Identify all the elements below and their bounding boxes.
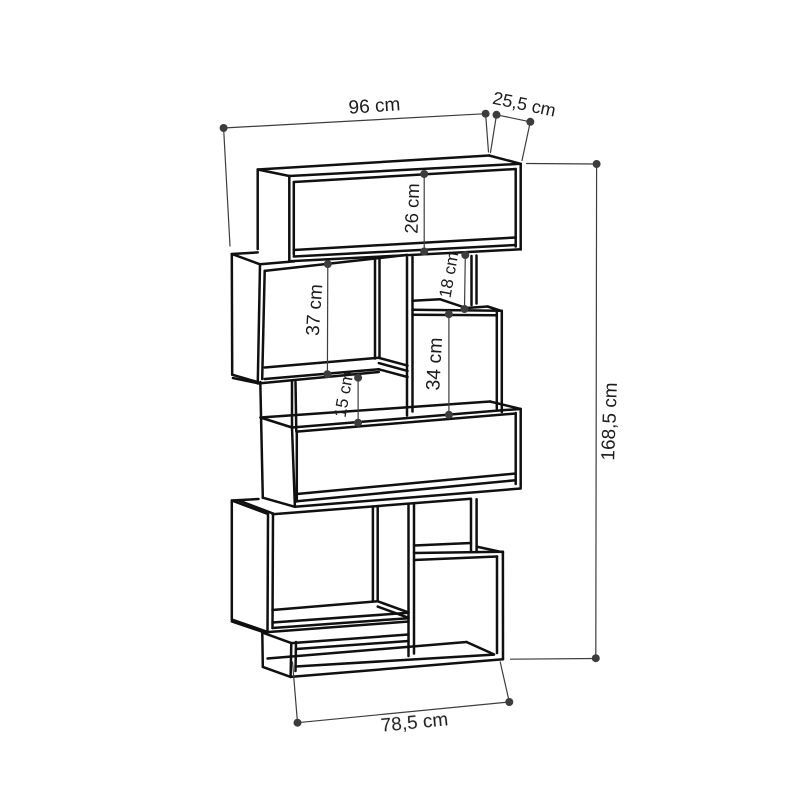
svg-text:34 cm: 34 cm — [422, 337, 447, 391]
svg-text:96 cm: 96 cm — [348, 94, 401, 119]
svg-text:26 cm: 26 cm — [401, 183, 424, 234]
svg-text:37 cm: 37 cm — [303, 283, 328, 336]
svg-text:168,5 cm: 168,5 cm — [598, 382, 622, 461]
